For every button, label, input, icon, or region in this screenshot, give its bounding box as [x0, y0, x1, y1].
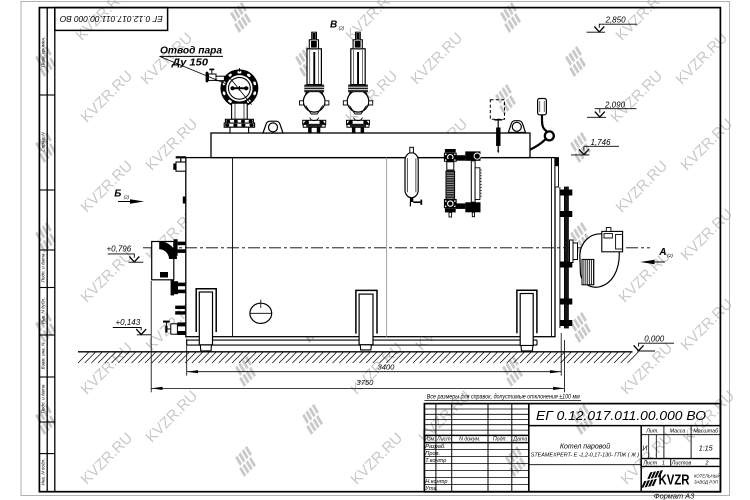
svg-text:0,000: 0,000: [644, 335, 665, 344]
svg-text:1: 1: [662, 461, 665, 467]
svg-text:ЕГ 0.12.017.011.00.000 ВО: ЕГ 0.12.017.011.00.000 ВО: [60, 14, 163, 23]
svg-text:2,850: 2,850: [605, 15, 627, 24]
svg-text:3400: 3400: [378, 362, 396, 371]
svg-text:Лист: Лист: [642, 461, 657, 467]
svg-text:Лист: Лист: [436, 436, 451, 442]
svg-text:KVZR: KVZR: [659, 472, 690, 488]
svg-text:Взам. инв. N: Взам. инв. N: [41, 342, 46, 369]
svg-text:3750: 3750: [357, 378, 375, 387]
svg-text:Дата: Дата: [512, 436, 527, 442]
svg-text:STEAMEXPERT- Е -1,2-0,17-130-: STEAMEXPERT- Е -1,2-0,17-130- ГПЖ ( Ж ): [531, 453, 640, 459]
svg-text:Лит.: Лит.: [645, 428, 658, 434]
svg-text:ЕГ 0.12.017.011.00.000 ВО: ЕГ 0.12.017.011.00.000 ВО: [536, 408, 706, 423]
svg-text:(2): (2): [124, 194, 130, 199]
svg-text:Все размеры для справок, допус: Все размеры для справок, допустимые откл…: [427, 393, 580, 401]
svg-text:В: В: [330, 20, 337, 31]
svg-text:Подп.: Подп.: [493, 436, 507, 442]
svg-text:Б: Б: [114, 189, 121, 200]
svg-text:2,090: 2,090: [604, 100, 626, 109]
svg-text:Пров.: Пров.: [425, 451, 440, 457]
svg-text:Разраб.: Разраб.: [425, 444, 445, 450]
svg-text:(2): (2): [339, 25, 345, 30]
svg-text:Масса: Масса: [670, 428, 686, 434]
svg-text:Подп. и дата: Подп. и дата: [41, 253, 46, 282]
svg-text:Н.контр: Н.контр: [425, 479, 447, 485]
svg-text:Формат А3: Формат А3: [654, 492, 695, 500]
svg-text:+0,796: +0,796: [107, 245, 132, 254]
svg-text:Масштаб: Масштаб: [693, 428, 719, 434]
svg-text:1,746: 1,746: [591, 138, 612, 147]
svg-text:Котел паровой: Котел паровой: [560, 442, 610, 450]
svg-text:1:15: 1:15: [699, 443, 714, 452]
svg-text:Изм.: Изм.: [424, 436, 435, 442]
svg-text:Ду 150: Ду 150: [171, 57, 208, 69]
svg-text:Перв. примен.: Перв. примен.: [41, 37, 46, 68]
svg-text:2: 2: [705, 461, 709, 467]
svg-text:А: А: [658, 247, 666, 258]
svg-text:N докум.: N докум.: [459, 436, 480, 442]
svg-text:Утв.: Утв.: [424, 486, 438, 492]
svg-text:Подп. и дата: Подп. и дата: [41, 384, 46, 413]
svg-text:Справ. N: Справ. N: [41, 132, 46, 152]
svg-text:Т.контр: Т.контр: [425, 458, 446, 464]
svg-text:КОТЕЛЬНЫЙ: КОТЕЛЬНЫЙ: [694, 474, 720, 479]
svg-text:ЗАВОД РЭП: ЗАВОД РЭП: [694, 480, 719, 485]
svg-text:Инв. N дубл.: Инв. N дубл.: [41, 298, 46, 325]
svg-text:Отвод пара: Отвод пара: [160, 45, 222, 57]
svg-text:+0,143: +0,143: [116, 318, 141, 327]
svg-text:(2): (2): [667, 253, 673, 258]
svg-text:Листов: Листов: [671, 461, 692, 467]
svg-text:Инв. N подл.: Инв. N подл.: [41, 459, 46, 486]
